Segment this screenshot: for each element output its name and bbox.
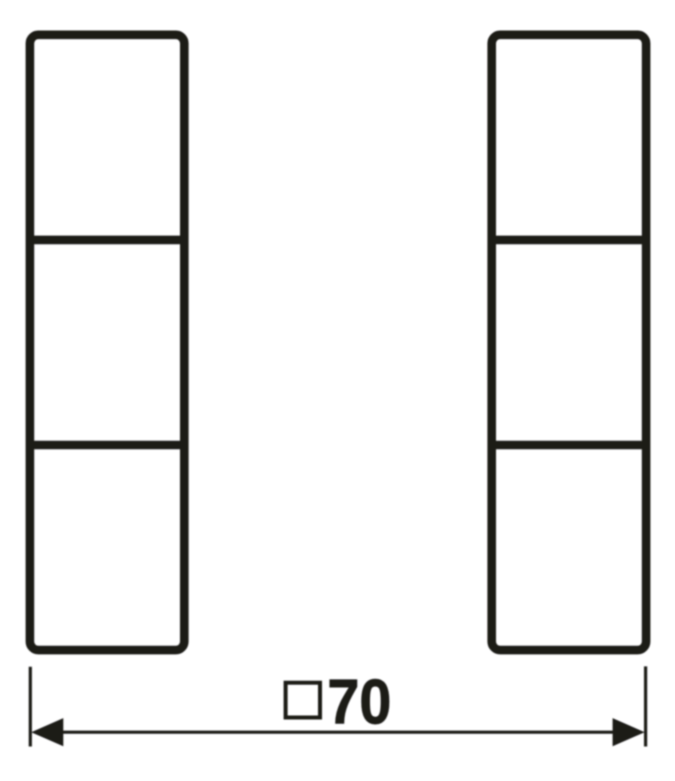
- svg-text:70: 70: [327, 668, 391, 738]
